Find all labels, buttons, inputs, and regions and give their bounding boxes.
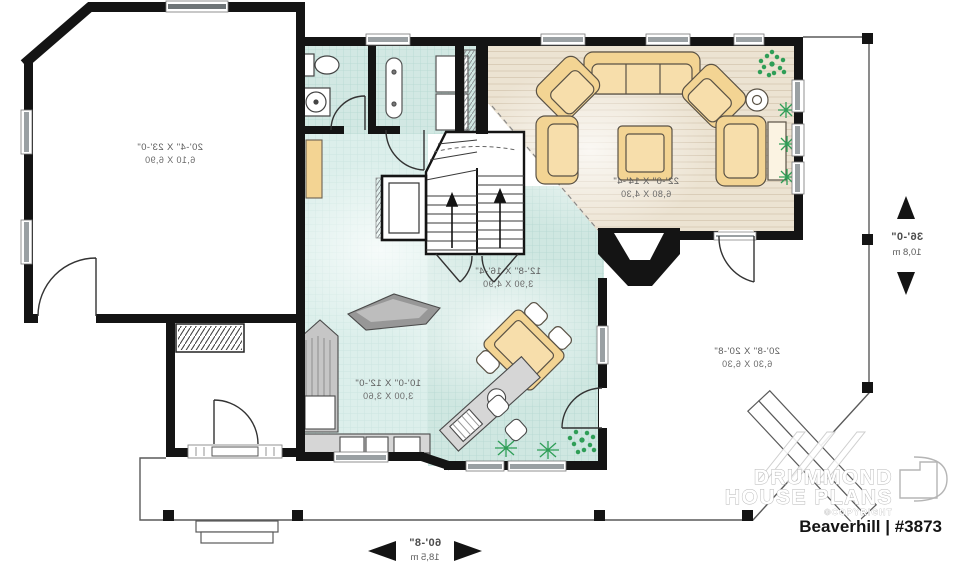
plant-icon <box>495 439 517 457</box>
front-entry <box>188 445 282 458</box>
depth-imperial: 36'-0" <box>891 231 923 243</box>
loveseat <box>536 116 578 184</box>
round-side-table <box>746 89 768 111</box>
shelving-band <box>464 50 476 132</box>
porch-post <box>862 382 873 393</box>
dining-dim-imperial: 12'-8" X 16'-4" <box>475 266 541 277</box>
window <box>508 461 566 471</box>
window <box>792 80 804 112</box>
porch-post <box>742 510 753 521</box>
elevator-shaft <box>376 176 426 240</box>
terrace-dim-metric: 6,30 X 6,30 <box>722 359 772 369</box>
kitchen-dim-metric: 3,00 X 3,60 <box>363 391 413 401</box>
console-table <box>768 122 786 180</box>
window <box>597 326 608 364</box>
ironing-board <box>386 58 402 118</box>
depth-metric: 10,8 m <box>892 247 921 258</box>
pantry-fridge-unit <box>302 320 338 432</box>
coffee-table <box>618 126 672 180</box>
width-imperial: 60'-8" <box>409 537 441 549</box>
floorplan-page: 20'-4" X 23'-0" 6,10 X 6,90 22'-0" X 14'… <box>0 0 960 569</box>
toilet-icon <box>315 56 339 74</box>
window <box>734 34 764 45</box>
living-dim-metric: 6,80 X 4,30 <box>621 189 671 199</box>
garage-dim-imperial: 20'-4" X 23'-0" <box>137 142 203 153</box>
terrace-dim-imperial: 20'-8" X 20'-8" <box>714 346 780 357</box>
porch-post <box>594 510 605 521</box>
garage-dim-metric: 6,10 X 6,90 <box>145 155 195 165</box>
brand-copyright: ©COPYRIGHT <box>824 507 893 517</box>
plan-title: Beaverhill | #3873 <box>799 517 942 536</box>
kitchen-dim-imperial: 10'-0" X 12'-0" <box>355 378 421 389</box>
front-door <box>212 447 258 456</box>
sofa <box>584 52 700 94</box>
kitchen-sink <box>340 437 364 454</box>
living-dim-imperial: 22'-0" X 14'-4" <box>613 176 679 187</box>
window <box>334 452 388 462</box>
window <box>21 220 32 264</box>
plant-icon <box>537 441 559 459</box>
dishwasher <box>394 437 420 454</box>
window <box>646 34 690 45</box>
toilet-tank <box>304 54 314 76</box>
kitchen-sink <box>366 437 388 454</box>
window <box>466 461 504 471</box>
brand-name-line2: HOUSE PLANS <box>725 486 893 509</box>
dining-dim-metric: 3,90 X 4,90 <box>483 279 533 289</box>
floorplan-drawing: 20'-4" X 23'-0" 6,10 X 6,90 22'-0" X 14'… <box>0 0 960 569</box>
window <box>792 162 804 194</box>
porch-post <box>163 510 174 521</box>
sofa-right <box>716 116 786 186</box>
porch-post <box>862 234 873 245</box>
window <box>541 34 585 45</box>
porch-post <box>862 33 873 44</box>
door-sill <box>714 232 756 240</box>
hall-bench <box>306 140 322 198</box>
plant-icon <box>778 102 794 118</box>
front-steps <box>196 521 278 543</box>
porch-post <box>292 510 303 521</box>
window <box>366 34 410 45</box>
window <box>792 124 804 156</box>
width-metric: 18,5 m <box>410 552 439 563</box>
window <box>21 110 32 154</box>
window <box>166 1 228 12</box>
